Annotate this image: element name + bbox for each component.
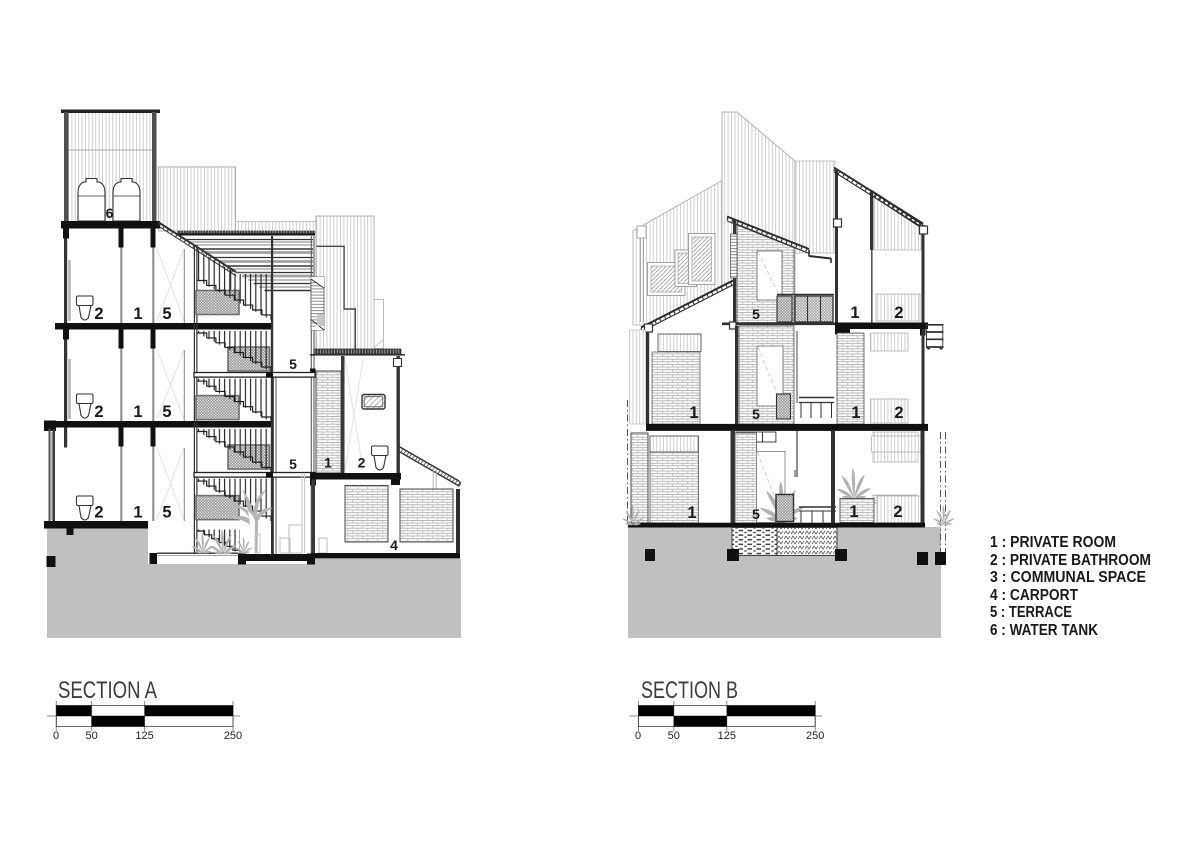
svg-text:1: 1	[849, 503, 858, 521]
svg-text:2: 2	[94, 305, 103, 323]
svg-text:SECTION A: SECTION A	[58, 677, 157, 704]
svg-text:4 : CARPORT: 4 : CARPORT	[990, 587, 1078, 604]
svg-text:5: 5	[289, 356, 297, 372]
svg-text:2: 2	[358, 455, 366, 471]
svg-text:2: 2	[894, 304, 903, 322]
svg-text:5: 5	[162, 403, 171, 421]
svg-text:1: 1	[133, 403, 142, 421]
svg-text:SECTION B: SECTION B	[641, 677, 738, 704]
svg-text:5: 5	[162, 305, 171, 323]
svg-text:1: 1	[850, 304, 859, 322]
svg-text:1: 1	[324, 455, 332, 471]
svg-text:2: 2	[94, 504, 103, 522]
svg-text:250: 250	[806, 730, 824, 742]
svg-text:2 : PRIVATE BATHROOM: 2 : PRIVATE BATHROOM	[990, 552, 1151, 569]
svg-text:50: 50	[85, 730, 97, 742]
svg-text:1: 1	[851, 404, 860, 422]
svg-text:1: 1	[133, 305, 142, 323]
svg-text:5: 5	[752, 506, 760, 522]
svg-text:5: 5	[752, 306, 760, 322]
svg-text:2: 2	[893, 503, 902, 521]
svg-text:5: 5	[162, 504, 171, 522]
svg-text:1: 1	[689, 404, 698, 422]
svg-text:250: 250	[224, 730, 242, 742]
svg-text:1: 1	[133, 504, 142, 522]
svg-text:4: 4	[390, 537, 398, 553]
svg-text:2: 2	[894, 404, 903, 422]
svg-text:2: 2	[94, 403, 103, 421]
svg-text:1 : PRIVATE ROOM: 1 : PRIVATE ROOM	[990, 534, 1116, 551]
svg-text:6 : WATER TANK: 6 : WATER TANK	[990, 622, 1098, 639]
svg-text:0: 0	[53, 730, 59, 742]
svg-text:1: 1	[687, 504, 696, 522]
svg-text:5 : TERRACE: 5 : TERRACE	[990, 604, 1072, 621]
svg-text:5: 5	[752, 406, 760, 422]
svg-text:125: 125	[718, 730, 736, 742]
svg-text:50: 50	[668, 730, 680, 742]
svg-text:3 : COMMUNAL SPACE: 3 : COMMUNAL SPACE	[990, 569, 1146, 586]
svg-text:6: 6	[106, 205, 114, 221]
svg-text:5: 5	[289, 456, 297, 472]
svg-text:125: 125	[135, 730, 153, 742]
svg-text:0: 0	[635, 730, 641, 742]
